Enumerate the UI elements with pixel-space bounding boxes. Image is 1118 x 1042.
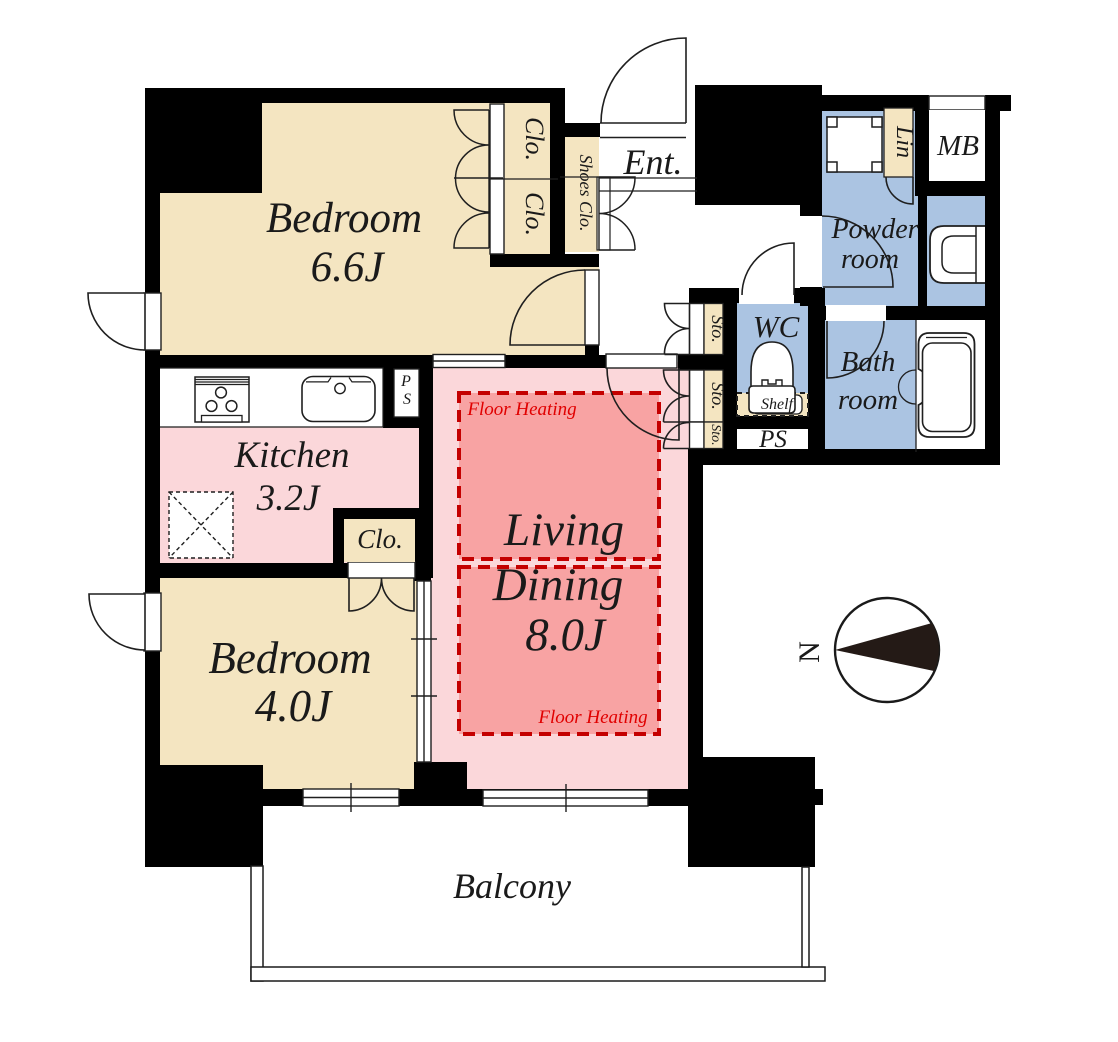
svg-text:Balcony: Balcony [453,866,571,906]
svg-text:Dining: Dining [492,559,624,611]
svg-text:6.6J: 6.6J [311,244,386,291]
svg-text:Ent.: Ent. [623,142,683,182]
svg-text:3.2J: 3.2J [256,478,321,519]
svg-text:Sto.: Sto. [708,382,728,410]
svg-text:Kitchen: Kitchen [233,435,349,476]
svg-text:8.0J: 8.0J [525,609,607,661]
svg-text:Bedroom: Bedroom [208,633,371,683]
svg-text:WC: WC [753,309,800,344]
svg-text:Powder: Powder [830,214,918,245]
svg-text:4.0J: 4.0J [255,681,333,731]
svg-text:Clo.: Clo. [520,192,549,236]
svg-text:PS: PS [758,426,787,453]
svg-text:Lin: Lin [891,125,917,158]
svg-text:S: S [403,391,411,408]
svg-text:Shelf: Shelf [761,396,796,413]
svg-text:Clo.: Clo. [357,524,403,554]
svg-text:Bath: Bath [841,346,896,378]
svg-text:Shoes Clo.: Shoes Clo. [576,154,596,231]
svg-text:Floor Heating: Floor Heating [537,707,647,728]
svg-text:room: room [841,244,899,275]
svg-text:Clo.: Clo. [520,117,549,161]
svg-text:N: N [793,641,826,663]
svg-text:Living: Living [503,504,624,556]
svg-text:room: room [838,384,898,416]
svg-text:Sto.: Sto. [708,315,728,343]
svg-text:MB: MB [936,130,979,162]
svg-text:Bedroom: Bedroom [266,195,422,242]
svg-text:Floor Heating: Floor Heating [466,399,576,420]
svg-text:Sto.: Sto. [708,424,723,445]
svg-text:P: P [400,373,411,390]
